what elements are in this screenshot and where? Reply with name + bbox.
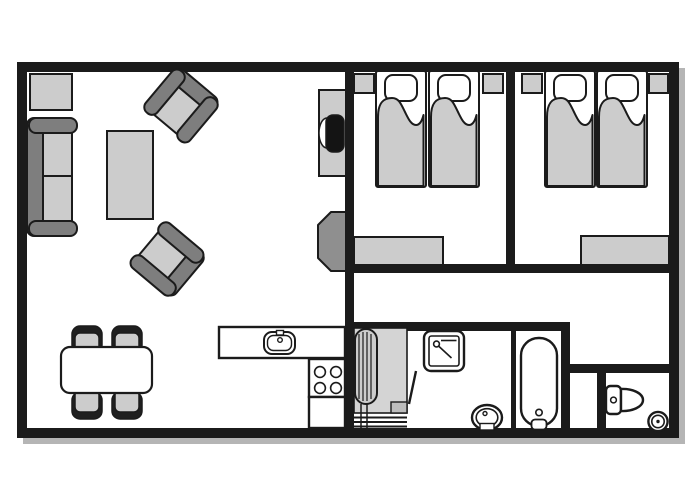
lower-counter	[309, 397, 345, 428]
toilet-button	[611, 397, 617, 403]
sofa-back	[27, 118, 43, 236]
coffee-table	[107, 131, 153, 219]
dining-chair	[112, 390, 142, 419]
kitchen-sink	[264, 331, 295, 355]
sink-tap	[277, 331, 284, 336]
sofa-armrest	[29, 118, 77, 133]
sofa	[27, 118, 77, 236]
bathtub	[521, 338, 557, 430]
wall-bedroom-divider	[506, 72, 515, 272]
closet-step	[391, 402, 407, 413]
washbasin	[472, 405, 502, 430]
tub-drain	[536, 409, 542, 415]
tv	[326, 115, 344, 152]
nightstand	[483, 74, 503, 93]
dresser	[354, 237, 443, 265]
twin-bed	[597, 71, 647, 187]
nightstand	[354, 74, 374, 93]
basin-drain	[483, 412, 487, 416]
burner	[331, 367, 342, 378]
sofa-armrest	[29, 221, 77, 236]
dining-chair	[72, 390, 102, 419]
burner	[315, 383, 326, 394]
wall-bath-partition	[511, 331, 516, 433]
stove	[309, 359, 345, 397]
twin-bed	[376, 71, 426, 187]
fireplace	[318, 212, 346, 271]
sofa-cushion	[42, 131, 72, 176]
dining-table	[61, 347, 152, 393]
dresser	[581, 236, 669, 265]
sofa-cushion	[42, 176, 72, 221]
floor-plan-drawing	[0, 0, 700, 500]
shower-unit	[424, 331, 464, 371]
sink-drain	[278, 338, 283, 343]
wall-wc-north	[570, 364, 674, 373]
nightstand	[522, 74, 542, 93]
side-table	[30, 74, 72, 110]
wall-bathroom-east	[561, 322, 570, 433]
twin-bed	[545, 71, 595, 187]
twin-bed	[429, 71, 479, 187]
burner	[315, 367, 326, 378]
tub-faucet	[532, 420, 547, 430]
corner-basin-drain	[656, 420, 659, 423]
burner	[331, 383, 342, 394]
entry-utility	[354, 328, 416, 428]
floor-plan-canvas	[0, 0, 700, 500]
wall-closet-wc-divider	[597, 364, 606, 433]
corner-basin	[648, 412, 667, 431]
radiator-body	[355, 329, 377, 404]
basin-pedestal	[480, 424, 494, 431]
nightstand	[649, 74, 668, 93]
